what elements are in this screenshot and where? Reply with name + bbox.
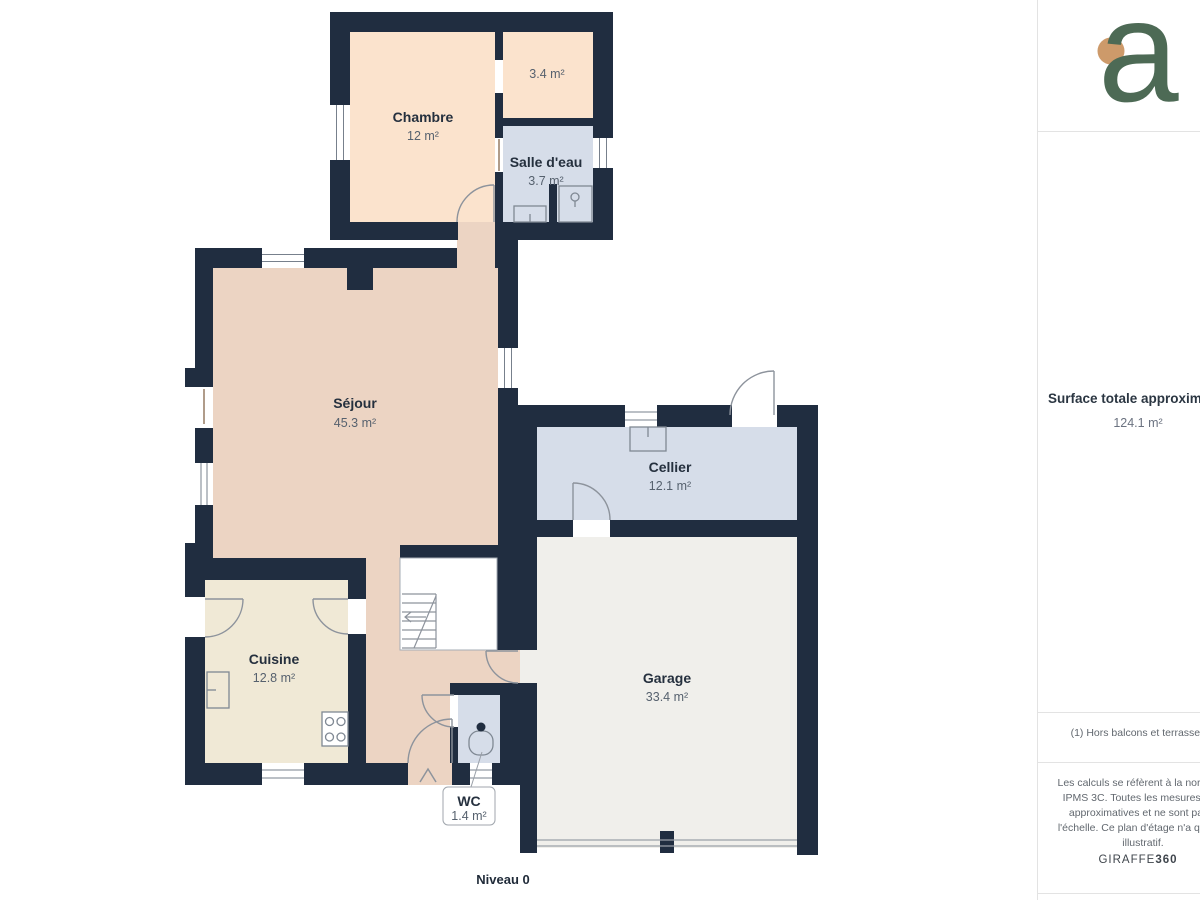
room-salle-eau-name: Salle d'eau: [510, 154, 583, 170]
garage-door-gap-fill: [520, 650, 537, 683]
window-salle-eau-right: [593, 138, 613, 168]
room-wc-area: 1.4 m²: [451, 809, 486, 823]
brand-logo: a: [1038, 0, 1200, 131]
disclaimer-line: approximatives et ne sont pas à: [1043, 806, 1200, 821]
logo-letter: a: [1098, 0, 1179, 132]
window-sejour-top: [262, 248, 304, 268]
room-degagement-area: 3.4 m²: [529, 67, 564, 81]
room-wc-name: WC: [457, 793, 480, 809]
wc-label-box: WC 1.4 m²: [443, 787, 495, 825]
disclaimer-line: Les calculs se réfèrent à la norme RI: [1043, 776, 1200, 791]
room-garage-name: Garage: [643, 670, 691, 686]
stove-icon: [322, 712, 348, 746]
divider: [1038, 762, 1200, 763]
room-cuisine-area: 12.8 m²: [253, 671, 295, 685]
disclaimer-line: l'échelle. Ce plan d'étage n'a qu'un b: [1043, 821, 1200, 836]
window-sejour-left: [195, 463, 213, 505]
window-cellier-top: [625, 405, 657, 427]
footnote: (1) Hors balcons et terrasses: [1038, 727, 1200, 739]
surface-total-title: Surface totale approximati: [1048, 391, 1200, 406]
room-chambre-name: Chambre: [393, 109, 454, 125]
hallway-fill: [366, 545, 400, 763]
room-cuisine-name: Cuisine: [249, 651, 300, 667]
window-wc-bottom: [470, 763, 492, 785]
room-sejour-name: Séjour: [333, 395, 377, 411]
window-chambre-left: [330, 105, 350, 160]
door-cellier-exterior: [730, 371, 774, 415]
room-salle-eau-area: 3.7 m²: [528, 174, 563, 188]
room-garage-area: 33.4 m²: [646, 690, 688, 704]
room-cellier-name: Cellier: [649, 459, 692, 475]
divider: [1038, 712, 1200, 713]
giraffe360-brand: GIRAFFE360: [1038, 854, 1200, 866]
brand-name: GIRAFFE: [1098, 854, 1155, 866]
window-sejour-right: [498, 348, 518, 388]
window-cuisine-bottom: [262, 763, 304, 785]
room-sejour-area: 45.3 m²: [334, 416, 376, 430]
disclaimer-line: illustratif.: [1043, 836, 1200, 851]
room-chambre-fill: [350, 32, 495, 222]
level-label: Niveau 0: [476, 872, 529, 887]
stairwell: [400, 558, 497, 650]
brand-suffix: 360: [1155, 854, 1177, 866]
disclaimer-line: IPMS 3C. Toutes les mesures sont: [1043, 791, 1200, 806]
divider: [1038, 131, 1200, 132]
divider: [1038, 893, 1200, 894]
entrance-gap-fill: [408, 763, 452, 785]
info-panel: a Surface totale approximati 124.1 m² (1…: [1037, 0, 1200, 900]
surface-total-value: 124.1 m²: [1038, 416, 1200, 430]
floorplan: Chambre 12 m² 3.4 m² Salle d'eau 3.7 m² …: [0, 0, 1037, 900]
passage-fill: [457, 222, 495, 268]
room-chambre-area: 12 m²: [407, 129, 439, 143]
room-cellier-area: 12.1 m²: [649, 479, 691, 493]
disclaimer: Les calculs se réfèrent à la norme RI IP…: [1043, 776, 1200, 851]
